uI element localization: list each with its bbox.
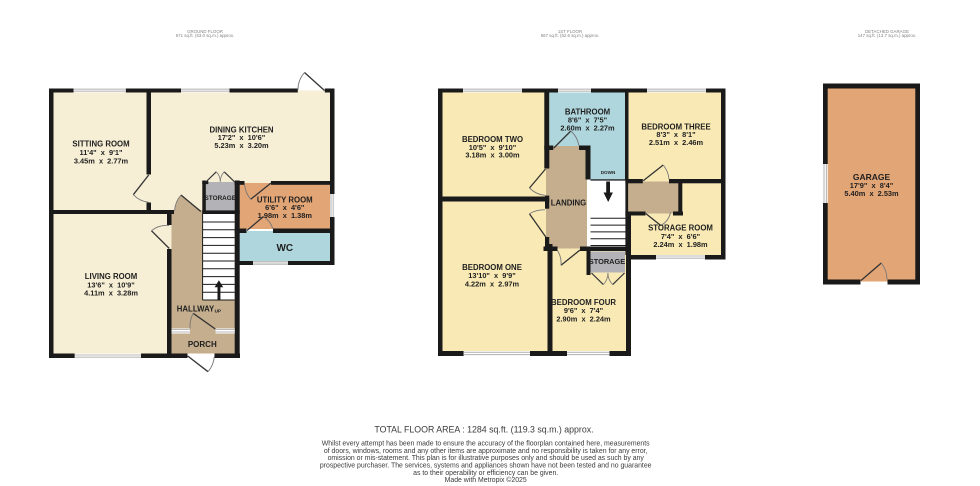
svg-text:4.22m x 2.97m: 4.22m x 2.97m (465, 280, 520, 289)
svg-text:SITTING ROOM: SITTING ROOM (72, 139, 129, 148)
svg-text:5.40m x 2.53m: 5.40m x 2.53m (844, 189, 899, 198)
svg-text:DOWN: DOWN (601, 170, 616, 175)
svg-text:TOTAL FLOOR AREA : 1284 sq.ft.: TOTAL FLOOR AREA : 1284 sq.ft. (119.3 sq… (374, 424, 593, 434)
svg-text:prospective purchaser. The ser: prospective purchaser. The services, sys… (320, 463, 652, 470)
svg-text:5.23m x 3.20m: 5.23m x 3.20m (214, 141, 269, 150)
svg-text:STORAGE: STORAGE (205, 195, 237, 202)
svg-text:4.11m x 3.28m: 4.11m x 3.28m (84, 288, 138, 297)
svg-text:WC: WC (276, 243, 293, 254)
svg-text:1.98m x 1.38m: 1.98m x 1.38m (258, 211, 313, 220)
svg-text:2.51m x 2.46m: 2.51m x 2.46m (649, 138, 704, 147)
svg-text:Made with Metropix ©2025: Made with Metropix ©2025 (445, 476, 527, 484)
svg-text:omission or mis-statement. Thi: omission or mis-statement. This plan is … (328, 455, 645, 462)
svg-text:UP: UP (215, 308, 221, 313)
svg-text:Whilst every attempt has been: Whilst every attempt has been made to en… (322, 441, 650, 448)
svg-text:2.24m x 1.98m: 2.24m x 1.98m (653, 240, 708, 249)
svg-text:567 sq.ft. (52.6 sq.m.) approx: 567 sq.ft. (52.6 sq.m.) approx. (541, 33, 600, 38)
svg-text:147 sq.ft. (13.7 sq.m.) approx: 147 sq.ft. (13.7 sq.m.) approx. (858, 33, 917, 38)
svg-text:2.60m x 2.27m: 2.60m x 2.27m (560, 124, 615, 133)
svg-text:2.90m x 2.24m: 2.90m x 2.24m (556, 315, 611, 324)
svg-text:LANDING: LANDING (551, 198, 587, 207)
svg-text:of doors, windows, rooms and a: of doors, windows, rooms and any other i… (324, 448, 648, 455)
svg-text:HALLWAY: HALLWAY (177, 304, 215, 313)
svg-text:as to their operability or eff: as to their operability or efficiency ca… (413, 470, 558, 477)
svg-text:3.45m x 2.77m: 3.45m x 2.77m (74, 157, 129, 166)
svg-text:STORAGE: STORAGE (589, 257, 625, 266)
svg-text:571 sq.ft. (53.0 sq.m.) approx: 571 sq.ft. (53.0 sq.m.) approx. (176, 33, 235, 38)
svg-text:PORCH: PORCH (188, 340, 217, 349)
svg-text:3.18m x 3.00m: 3.18m x 3.00m (465, 151, 520, 160)
